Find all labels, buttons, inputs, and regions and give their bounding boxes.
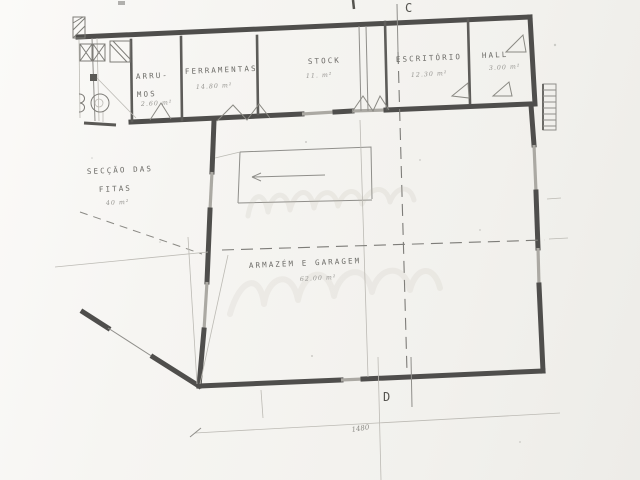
window-hatch-icon [93, 44, 105, 61]
stair-strip-icon [543, 84, 556, 130]
room-label-armazem: ARMAZÉM E GARAGEM [249, 256, 362, 270]
hall-left-wall [207, 210, 210, 282]
partition [257, 36, 258, 114]
plan-drawing: ARRU- MOS 2.60 m² FERRAMENTAS 14.80 m² S… [0, 0, 640, 480]
door-swing-icon [506, 35, 526, 52]
partition [385, 22, 387, 109]
room-label-escritorio: ESCRITÓRIO [396, 52, 462, 64]
dimension-line [195, 413, 560, 433]
hall-right-wall [531, 105, 534, 145]
hall-bottom-wall [199, 380, 341, 386]
stub-line [261, 390, 263, 418]
mezzanine-extension [215, 152, 240, 158]
mid-wall-gap [302, 112, 335, 114]
top-edge-tick [353, 0, 354, 9]
corridor-line [359, 26, 361, 111]
hall-left-wall-gap [204, 282, 207, 330]
watermark-script [230, 189, 440, 314]
faint-line [55, 252, 208, 267]
corridor-line [366, 26, 368, 111]
room-label-hall: HALL [482, 50, 509, 60]
mid-wall [386, 104, 530, 110]
d-line-lower [378, 357, 381, 480]
converging-line [188, 237, 197, 384]
room-label-seccao-2: FITAS [99, 184, 132, 194]
room-area-seccao: 40 m² [105, 199, 130, 207]
door-panel-icon [110, 41, 130, 62]
dashed-diagonal [80, 212, 202, 254]
section-marker-c: C [405, 1, 412, 15]
faint-vertical [360, 120, 368, 377]
room-area-hall: 3.00 m² [489, 63, 521, 72]
hall-left-wall-gap [210, 172, 212, 210]
hall-right-wall [536, 192, 538, 248]
section-marker-d: D [383, 390, 390, 404]
mid-wall-gap [352, 110, 386, 111]
mid-wall [335, 111, 352, 112]
partition [181, 37, 182, 120]
dash-outside-wall [547, 198, 568, 239]
room-area-stock: 11. m² [306, 72, 333, 80]
floor-plan-scan: ARRU- MOS 2.60 m² FERRAMENTAS 14.80 m² S… [0, 0, 640, 480]
diagonal-wall-gap [108, 328, 153, 357]
room-area-escritorio: 12.30 m² [411, 70, 448, 79]
room-label-arrumos-2: MOS [137, 89, 157, 99]
direction-arrow-icon [252, 173, 325, 181]
hall-bottom-wall [363, 371, 543, 379]
hall-left-wall [212, 121, 214, 172]
partition [131, 40, 132, 121]
room-area-arrumos: 2.60 m² [140, 99, 173, 108]
center-line-top [397, 4, 398, 52]
hall-right-wall-gap [538, 248, 539, 285]
room-label-seccao-1: SECÇÃO DAS [87, 164, 153, 176]
toilet-icon [79, 94, 116, 125]
door-swing-icon [493, 82, 512, 96]
room-label-arrumos-1: ARRU- [136, 71, 169, 81]
room-label-ferramentas: FERRAMENTAS [185, 64, 258, 76]
right-band-wall [530, 17, 535, 104]
door-swing-icon [452, 83, 469, 98]
wall-node [90, 74, 97, 81]
hall-right-wall-gap [534, 145, 536, 192]
center-dashed-line [398, 52, 407, 372]
hall-right-wall [539, 285, 543, 371]
window-hatch-icon [80, 44, 92, 61]
d-line [411, 357, 412, 407]
top-edge-mark [118, 1, 125, 5]
room-area-ferramentas: 14.80 m² [196, 82, 233, 91]
labels: ARRU- MOS 2.60 m² FERRAMENTAS 14.80 m² S… [87, 1, 521, 434]
dashed-horizontal [222, 240, 545, 250]
diagonal-wall [83, 312, 108, 328]
hall-bottom-wall-gap [341, 379, 363, 380]
top-wall [78, 17, 530, 37]
diagonal-wall [153, 357, 199, 386]
dimension-value: 1480 [351, 423, 370, 434]
room-label-stock: STOCK [308, 56, 341, 66]
